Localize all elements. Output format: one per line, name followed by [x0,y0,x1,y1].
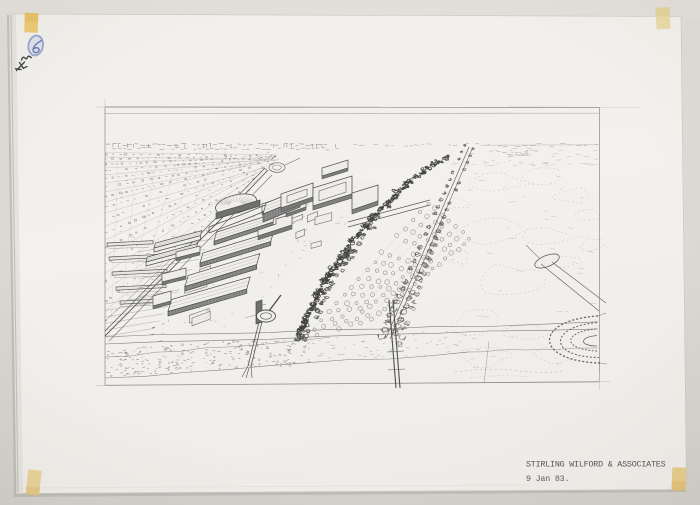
svg-text:STIRLING WILFORD & ASSOCIATES: STIRLING WILFORD & ASSOCIATES [526,460,666,470]
svg-text:9 Jan 83.: 9 Jan 83. [526,474,569,484]
